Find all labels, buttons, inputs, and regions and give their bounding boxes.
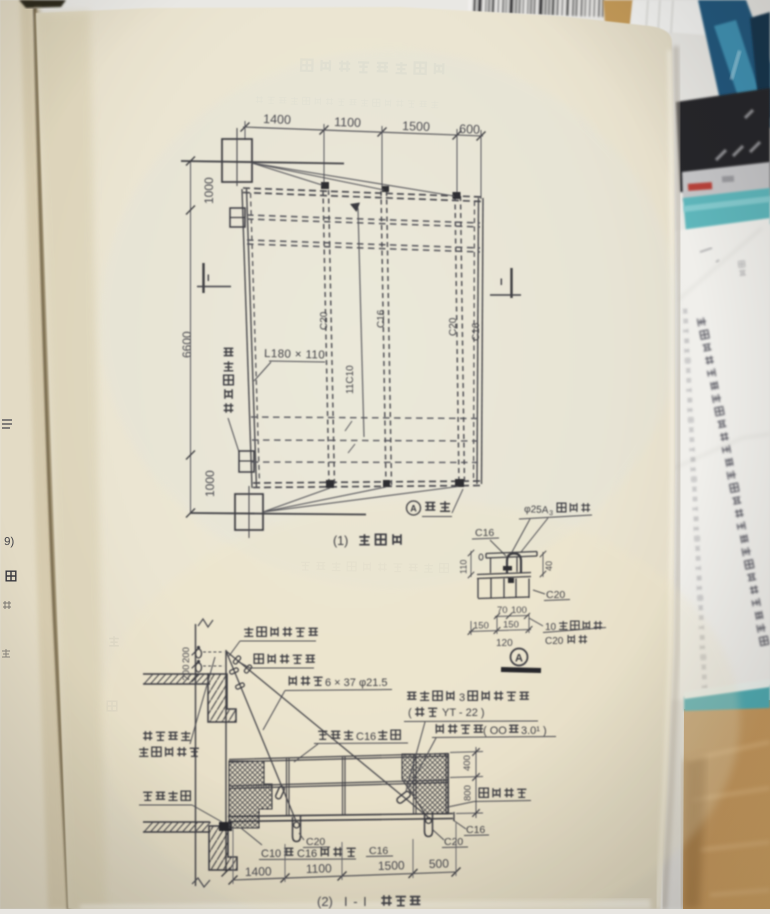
svg-text:100: 100 bbox=[511, 605, 527, 616]
svg-text:500: 500 bbox=[429, 856, 450, 871]
svg-text:200: 200 bbox=[181, 647, 192, 663]
svg-text:9): 9) bbox=[4, 536, 15, 548]
svg-text:C20: C20 bbox=[545, 636, 564, 647]
svg-text:150: 150 bbox=[503, 620, 519, 631]
svg-text:C20: C20 bbox=[444, 836, 463, 848]
svg-text:I - I: I - I bbox=[344, 894, 368, 909]
svg-text:1400: 1400 bbox=[263, 112, 291, 127]
svg-text:800: 800 bbox=[463, 785, 474, 801]
svg-text:C16: C16 bbox=[376, 309, 387, 328]
svg-text:(1): (1) bbox=[333, 534, 348, 548]
svg-text:( OO: ( OO bbox=[483, 725, 507, 737]
svg-text:400: 400 bbox=[462, 755, 473, 771]
svg-text:11C10: 11C10 bbox=[345, 365, 356, 394]
svg-text:600: 600 bbox=[459, 122, 480, 137]
svg-text:C16: C16 bbox=[466, 824, 485, 836]
svg-text:I: I bbox=[500, 277, 503, 288]
svg-text:1100: 1100 bbox=[306, 861, 332, 876]
svg-text:L180 × 110: L180 × 110 bbox=[264, 348, 325, 362]
svg-text:200: 200 bbox=[181, 665, 192, 681]
svg-text:C20: C20 bbox=[546, 589, 565, 601]
svg-text:(2): (2) bbox=[317, 894, 333, 909]
svg-text:3.0¹ ): 3.0¹ ) bbox=[521, 725, 547, 737]
svg-text:I: I bbox=[207, 273, 210, 284]
svg-text:6 × 37 φ21.5: 6 × 37 φ21.5 bbox=[325, 677, 388, 689]
svg-text:φ25A: φ25A bbox=[524, 504, 549, 516]
svg-text:C20: C20 bbox=[306, 836, 325, 848]
svg-text:150: 150 bbox=[473, 621, 489, 632]
svg-text:1000: 1000 bbox=[203, 470, 217, 497]
svg-text:C20: C20 bbox=[448, 317, 459, 336]
svg-text:110: 110 bbox=[459, 560, 469, 574]
svg-text:C16: C16 bbox=[475, 527, 494, 539]
svg-text:C16: C16 bbox=[369, 845, 388, 857]
svg-text:(: ( bbox=[408, 707, 412, 719]
svg-text:1400: 1400 bbox=[245, 864, 272, 879]
svg-text:3: 3 bbox=[459, 692, 465, 704]
svg-text:C10: C10 bbox=[261, 848, 281, 860]
svg-text:C16: C16 bbox=[297, 848, 317, 860]
svg-text:6600: 6600 bbox=[180, 331, 194, 358]
svg-text:40: 40 bbox=[544, 561, 554, 571]
svg-text:120: 120 bbox=[496, 638, 513, 649]
svg-text:C20: C20 bbox=[319, 311, 330, 330]
svg-text:C16: C16 bbox=[471, 322, 482, 341]
svg-text:C16: C16 bbox=[356, 731, 376, 743]
svg-text:1500: 1500 bbox=[402, 119, 430, 134]
svg-text:1000: 1000 bbox=[202, 177, 216, 204]
svg-text:A: A bbox=[410, 504, 417, 514]
svg-text:1500: 1500 bbox=[378, 858, 405, 873]
svg-text:3: 3 bbox=[549, 510, 553, 517]
svg-text:A: A bbox=[515, 653, 523, 665]
svg-text:1100: 1100 bbox=[334, 115, 361, 130]
svg-text:YT - 22 ): YT - 22 ) bbox=[442, 707, 485, 719]
